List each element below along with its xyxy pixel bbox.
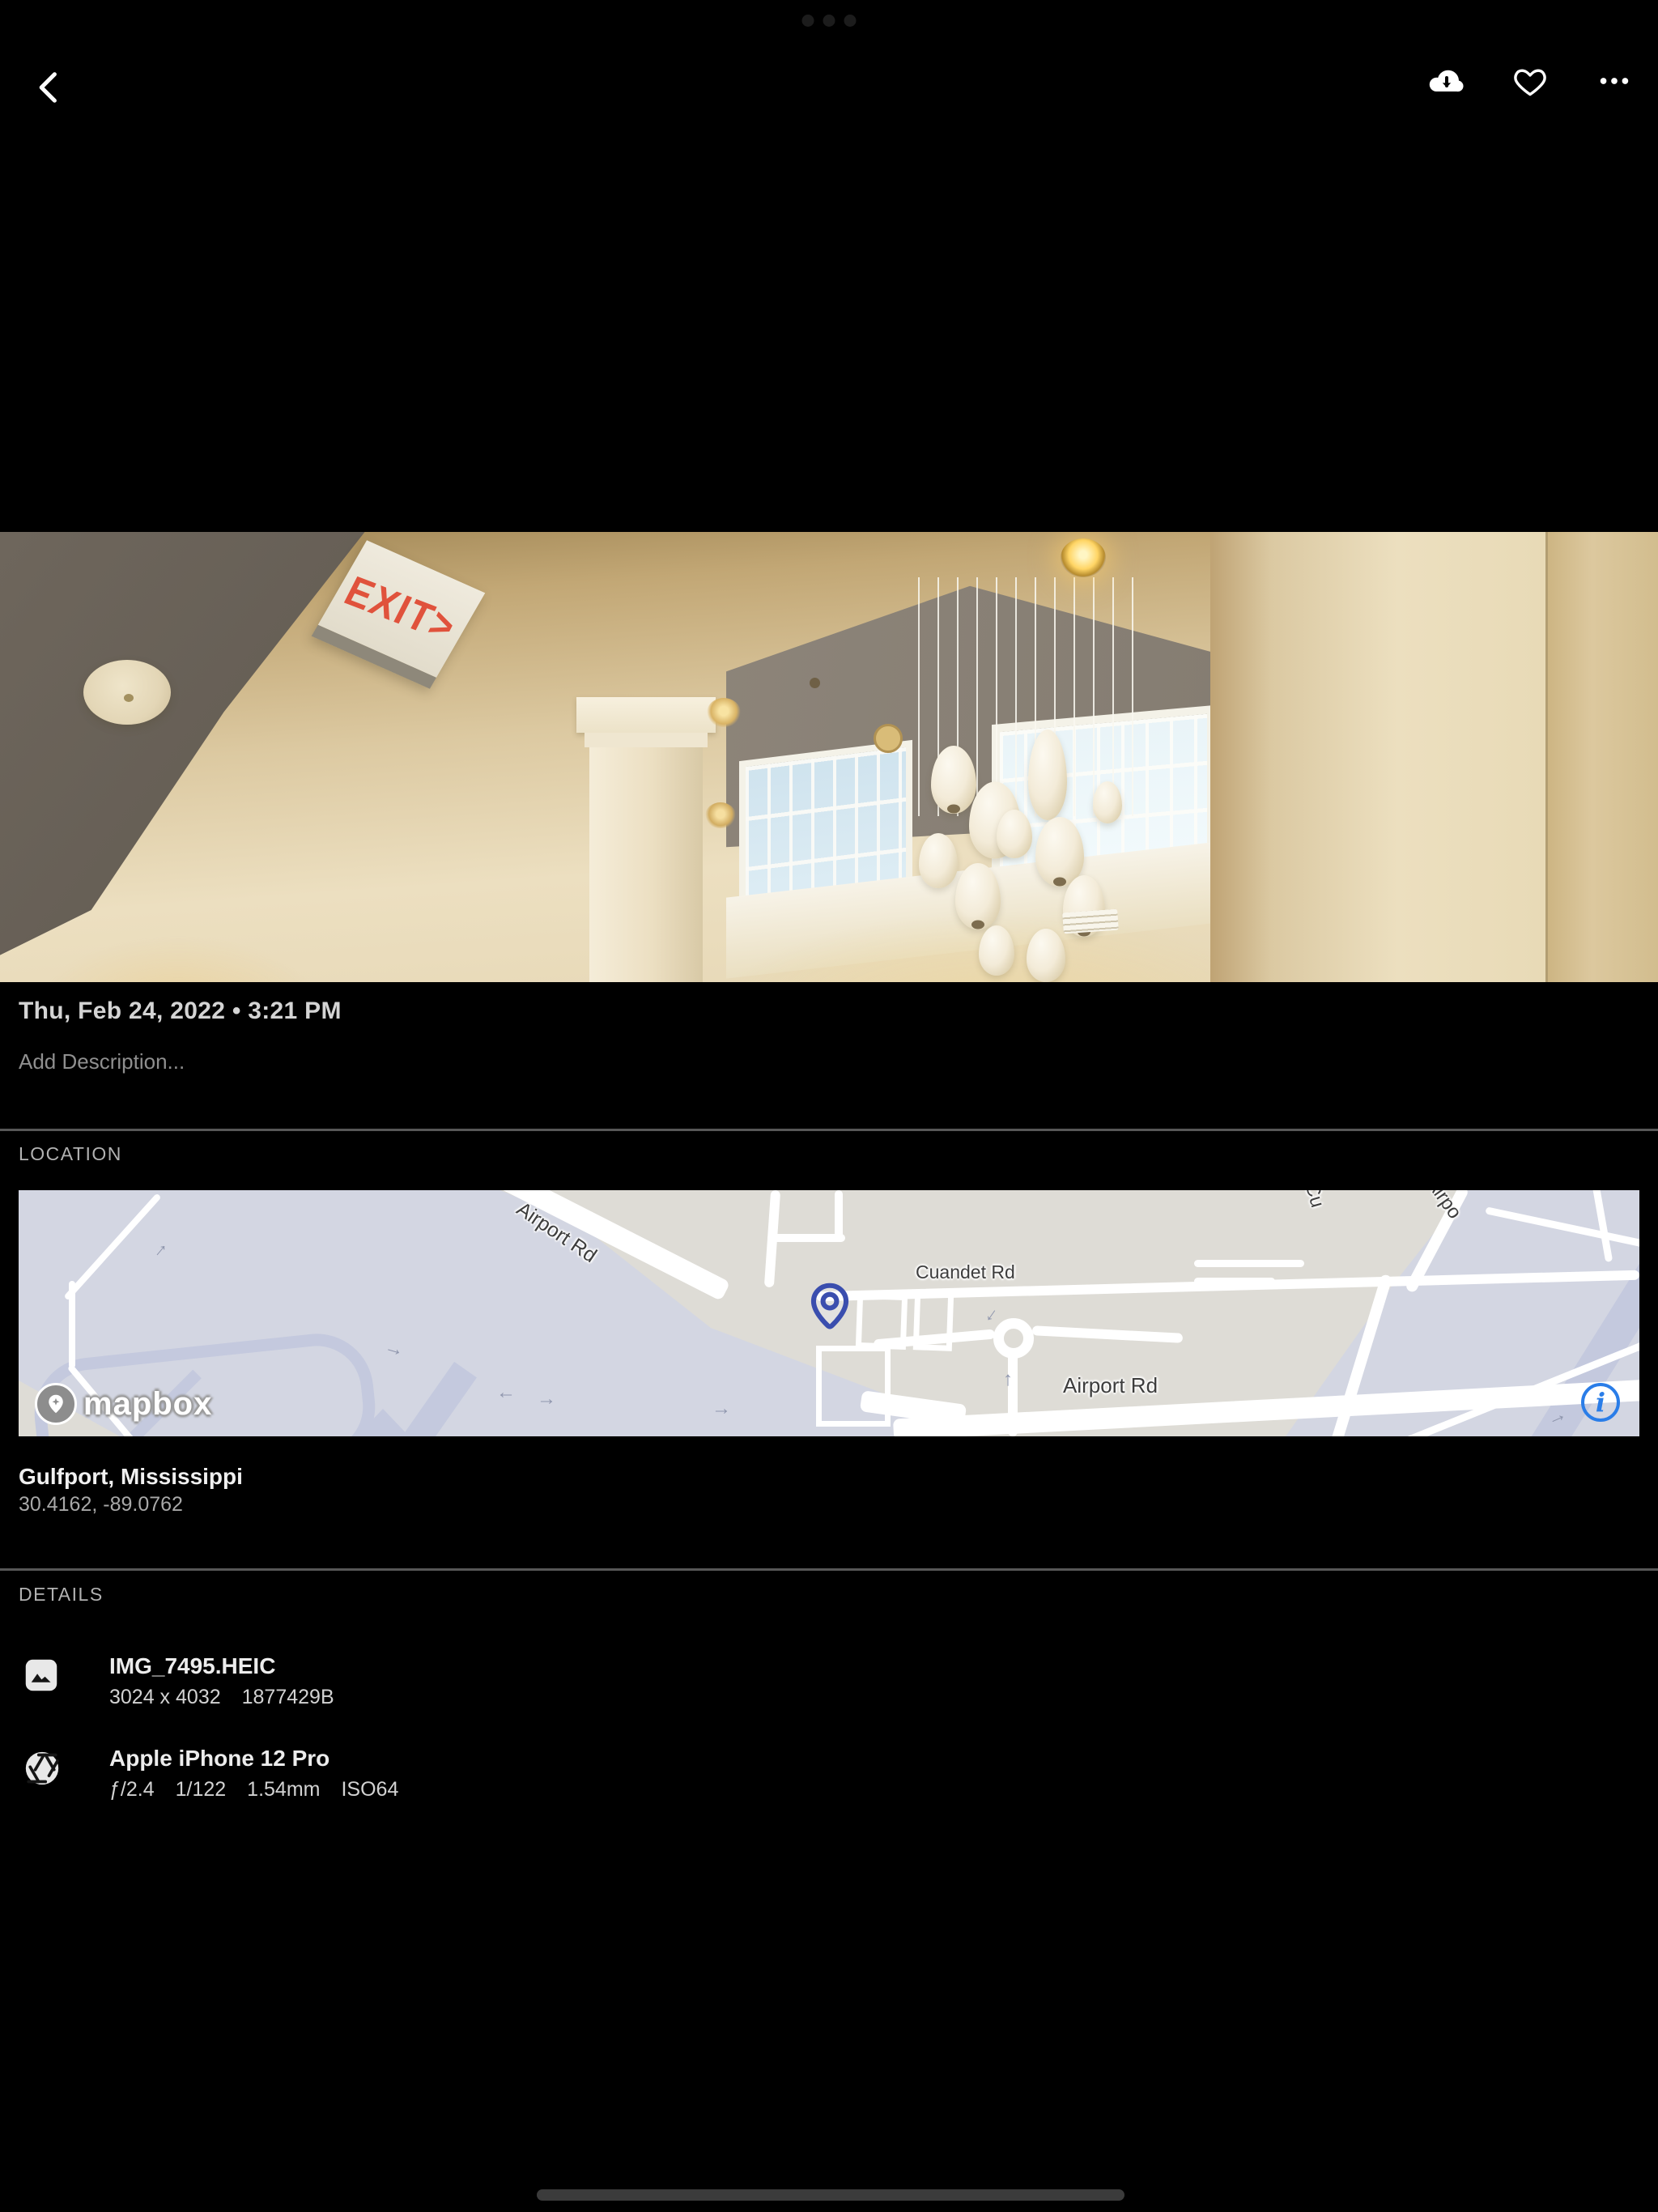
file-name: IMG_7495.HEIC (109, 1653, 275, 1679)
home-indicator[interactable] (537, 2189, 1124, 2201)
map-road-minor (767, 1234, 845, 1242)
photo-preview[interactable]: EXIT> (0, 532, 1658, 982)
camera-aperture: ƒ/2.4 (109, 1778, 155, 1801)
back-button[interactable] (29, 62, 71, 113)
ellipsis-icon (1596, 62, 1633, 100)
location-map[interactable]: → ← → → ↑ ↓ → ↑ Airport Rd Cuandet Rd Ai… (19, 1190, 1639, 1436)
map-oneway-arrow: → (537, 1388, 556, 1410)
map-parking-row (1194, 1260, 1304, 1267)
photo-smoke-detector (83, 660, 171, 725)
photo-warm-glow (32, 937, 324, 982)
mapbox-logo-icon (35, 1383, 77, 1425)
photo-pendant-lamp (919, 833, 958, 888)
download-button[interactable] (1426, 62, 1465, 100)
toolbar (0, 57, 1658, 121)
location-section-label: LOCATION (19, 1143, 122, 1165)
divider (0, 1568, 1658, 1571)
photo-sprinkler (810, 678, 820, 688)
photo-recessed-light (705, 802, 736, 828)
map-building (816, 1346, 891, 1427)
mapbox-wordmark: mapbox (83, 1386, 212, 1423)
more-button[interactable] (1595, 62, 1634, 100)
aperture-icon (24, 1750, 60, 1790)
location-coordinates: 30.4162, -89.0762 (19, 1493, 183, 1516)
details-section-label: DETAILS (19, 1584, 104, 1606)
map-roundabout (993, 1318, 1034, 1359)
detail-row-file: IMG_7495.HEIC 3024 x 40321877429B (24, 1653, 1158, 1726)
mapbox-attribution[interactable]: mapbox (35, 1383, 212, 1425)
map-oneway-arrow: → (382, 1335, 407, 1363)
map-road-minor (835, 1190, 843, 1240)
photo-far-right-wall (1545, 532, 1658, 982)
photo-pendant-lamp (997, 810, 1032, 858)
chevron-left-icon (29, 62, 71, 113)
map-location-pin (807, 1283, 852, 1339)
photo-air-diffuser (1062, 909, 1119, 934)
camera-shutter: 1/122 (176, 1778, 227, 1801)
map-road-perimeter (69, 1281, 75, 1368)
map-oneway-arrow: ↑ (1003, 1368, 1013, 1391)
photo-pendant-lamp (979, 925, 1014, 976)
location-place: Gulfport, Mississippi (19, 1464, 243, 1490)
photo-column-capital-step (585, 733, 708, 747)
map-building (913, 1290, 954, 1351)
map-info-button[interactable]: i (1581, 1383, 1620, 1422)
map-road-thin (1485, 1206, 1639, 1249)
photo-column-capital (576, 697, 716, 733)
map-building (856, 1293, 908, 1350)
camera-meta: ƒ/2.41/1221.54mmISO64 (109, 1778, 419, 1802)
photo-column (589, 747, 703, 982)
photo-pendant-lamp (1093, 781, 1122, 823)
camera-model: Apple iPhone 12 Pro (109, 1746, 329, 1772)
photo-date: Thu, Feb 24, 2022 • 3:21 PM (19, 998, 342, 1025)
multitask-indicator[interactable] (802, 15, 857, 27)
map-oneway-arrow: → (712, 1397, 731, 1420)
exit-sign-text: EXIT> (338, 566, 466, 651)
photo-recessed-light (1061, 538, 1106, 577)
file-meta: 3024 x 40321877429B (109, 1686, 355, 1709)
map-oneway-arrow: ↑ (150, 1238, 172, 1261)
photo-lamp-opening (971, 921, 984, 929)
photo-lamp-opening (1053, 878, 1066, 887)
map-road-thin (1592, 1190, 1613, 1262)
heart-outline-icon (1511, 61, 1550, 101)
map-parking-row (1194, 1278, 1275, 1285)
map-label-cuandet-rd: Cuandet Rd (916, 1261, 1015, 1283)
camera-focal-length: 1.54mm (247, 1778, 320, 1801)
map-road-perimeter (63, 1193, 161, 1300)
photo-lamp-opening (947, 805, 960, 814)
map-label-airport-rd-horizontal: Airport Rd (1063, 1373, 1158, 1398)
cloud-download-icon (1426, 61, 1465, 101)
photo-wall-clock (874, 724, 903, 753)
detail-row-camera: Apple iPhone 12 Pro ƒ/2.41/1221.54mmISO6… (24, 1746, 1158, 1819)
map-oneway-arrow: ← (496, 1381, 516, 1404)
image-icon (24, 1658, 58, 1696)
add-description-field[interactable]: Add Description... (19, 1049, 185, 1074)
file-dimensions: 3024 x 4032 (109, 1686, 221, 1708)
photo-right-column (1210, 532, 1550, 982)
divider (0, 1129, 1658, 1131)
file-size: 1877429B (242, 1686, 334, 1708)
favorite-button[interactable] (1511, 62, 1550, 100)
photo-recessed-light (707, 698, 741, 727)
camera-iso: ISO64 (341, 1778, 398, 1801)
map-road-minor (1008, 1351, 1018, 1436)
